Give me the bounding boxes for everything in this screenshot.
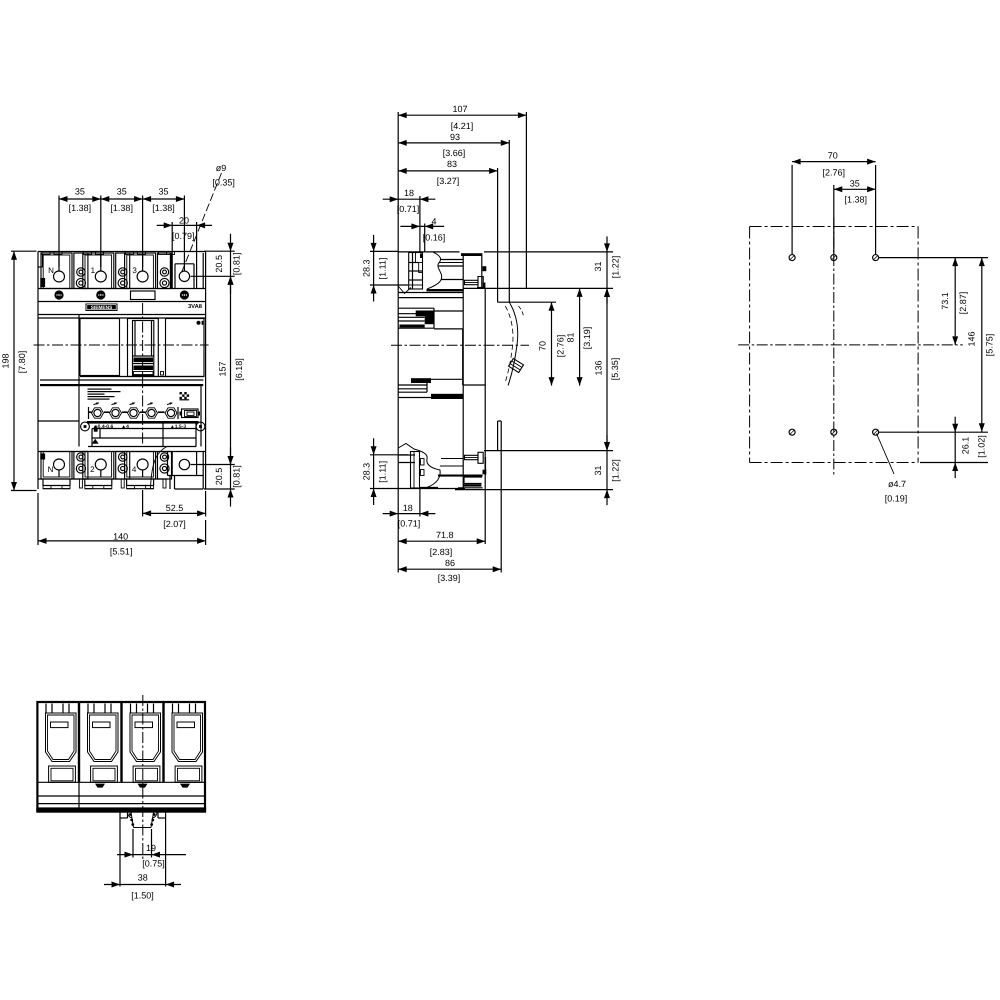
svg-text:19: 19: [146, 843, 156, 853]
svg-text:[1.38]: [1.38]: [110, 203, 133, 213]
svg-text:86: 86: [445, 558, 455, 568]
svg-text:[1.02]: [1.02]: [977, 435, 987, 458]
svg-text:35: 35: [158, 186, 168, 196]
svg-text:146: 146: [967, 331, 977, 346]
svg-text:[4.21]: [4.21]: [451, 121, 474, 131]
svg-text:35: 35: [850, 178, 860, 188]
svg-text:[1.50]: [1.50]: [131, 891, 154, 901]
svg-text:SIEMENS: SIEMENS: [91, 305, 113, 311]
svg-text:[1.11]: [1.11]: [377, 461, 387, 483]
svg-text:2: 2: [90, 465, 95, 474]
svg-text:52.5: 52.5: [166, 503, 184, 513]
svg-text:20.5: 20.5: [214, 255, 224, 273]
svg-text:157: 157: [217, 361, 227, 376]
svg-text:[3.19]: [3.19]: [582, 327, 592, 350]
svg-text:70: 70: [538, 341, 548, 351]
svg-text:[5.75]: [5.75]: [985, 334, 995, 357]
svg-text:28.3: 28.3: [361, 259, 371, 277]
svg-text:4: 4: [132, 465, 137, 474]
svg-text:[1.11]: [1.11]: [377, 258, 387, 280]
svg-text:[3.27]: [3.27]: [437, 176, 460, 186]
svg-text:[0.16]: [0.16]: [423, 232, 446, 242]
svg-text:81: 81: [566, 332, 576, 342]
svg-text:18: 18: [403, 503, 413, 513]
svg-text:[1.38]: [1.38]: [69, 203, 92, 213]
svg-text:[2.87]: [2.87]: [958, 292, 968, 315]
svg-text:N: N: [48, 266, 54, 275]
svg-text:3VA8: 3VA8: [188, 303, 203, 310]
svg-text:93: 93: [450, 132, 460, 142]
svg-text:198: 198: [1, 353, 11, 368]
svg-text:107: 107: [452, 104, 467, 114]
svg-text:73.1: 73.1: [940, 292, 950, 310]
svg-text:28.3: 28.3: [361, 463, 371, 481]
svg-text:20: 20: [179, 215, 189, 225]
svg-text:[2.07]: [2.07]: [163, 519, 186, 529]
svg-text:[1.22]: [1.22]: [611, 256, 621, 279]
svg-text:83: 83: [447, 159, 457, 169]
svg-text:71.8: 71.8: [436, 530, 454, 540]
svg-text:31: 31: [593, 465, 603, 475]
svg-text:ø4.7: ø4.7: [888, 479, 906, 489]
svg-text:[3.66]: [3.66]: [443, 148, 466, 158]
svg-text:4: 4: [431, 216, 436, 226]
svg-text:31: 31: [593, 261, 603, 271]
svg-text:1: 1: [91, 266, 96, 275]
svg-text:[5.51]: [5.51]: [110, 547, 133, 557]
svg-text:[1.38]: [1.38]: [845, 194, 868, 204]
svg-text:[0.75]: [0.75]: [142, 859, 165, 869]
svg-text:136: 136: [594, 360, 604, 375]
svg-text:[0.79]: [0.79]: [172, 231, 195, 241]
svg-text:ø9: ø9: [216, 163, 227, 173]
svg-text:[1.38]: [1.38]: [152, 203, 175, 213]
svg-text:[3.39]: [3.39]: [438, 573, 461, 583]
svg-text:[5.35]: [5.35]: [610, 358, 620, 381]
svg-text:70: 70: [828, 150, 838, 160]
svg-text:20.5: 20.5: [214, 468, 224, 486]
svg-text:140: 140: [113, 531, 128, 541]
svg-text:[6.18]: [6.18]: [234, 358, 244, 381]
svg-text:35: 35: [117, 186, 127, 196]
svg-text:[0.81]: [0.81]: [232, 465, 242, 488]
svg-text:[2.76]: [2.76]: [823, 167, 846, 177]
svg-text:[2.83]: [2.83]: [430, 547, 453, 557]
svg-text:[0.81]: [0.81]: [232, 253, 242, 276]
svg-text:[0.19]: [0.19]: [885, 494, 908, 504]
svg-text:3: 3: [132, 266, 137, 275]
svg-text:N: N: [48, 465, 54, 474]
svg-text:[1.22]: [1.22]: [611, 459, 621, 482]
svg-text:18: 18: [404, 188, 414, 198]
svg-text:26.1: 26.1: [961, 437, 971, 455]
svg-text:[0.71]: [0.71]: [397, 204, 420, 214]
svg-text:38: 38: [138, 873, 148, 883]
svg-text:[2.76]: [2.76]: [556, 335, 566, 358]
svg-text:[0.71]: [0.71]: [398, 519, 421, 529]
svg-text:[7.80]: [7.80]: [17, 351, 27, 374]
svg-text:35: 35: [75, 186, 85, 196]
